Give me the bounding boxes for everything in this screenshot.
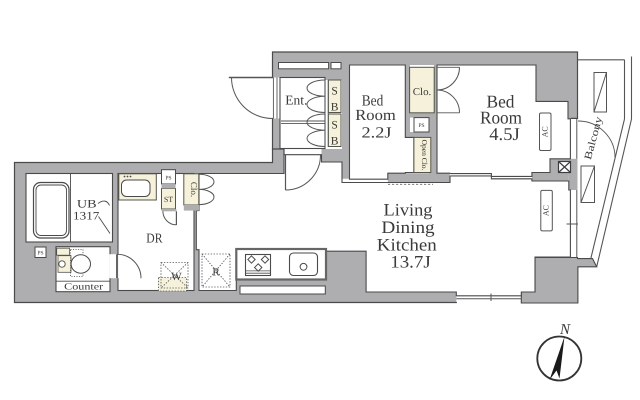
svg-text:13.7J: 13.7J <box>390 251 431 271</box>
svg-text:S: S <box>331 86 337 98</box>
svg-text:AC: AC <box>542 205 551 216</box>
svg-text:R: R <box>212 267 220 279</box>
svg-text:Clo.: Clo. <box>189 182 199 197</box>
svg-text:4.5J: 4.5J <box>489 124 520 144</box>
svg-text:Clo.: Clo. <box>413 87 432 98</box>
svg-text:PS: PS <box>418 123 424 129</box>
svg-text:2.2J: 2.2J <box>362 124 392 141</box>
svg-text:DR: DR <box>146 231 162 246</box>
svg-text:Room: Room <box>355 107 396 124</box>
svg-text:Open Clo.: Open Clo. <box>420 140 429 171</box>
svg-text:B: B <box>331 102 339 114</box>
svg-text:PS: PS <box>165 176 171 182</box>
svg-text:B: B <box>331 136 339 148</box>
svg-text:Counter: Counter <box>64 283 104 293</box>
svg-text:AC: AC <box>541 126 550 137</box>
svg-text:N: N <box>559 322 571 338</box>
svg-text:1317: 1317 <box>73 210 100 222</box>
svg-text:S: S <box>331 120 337 132</box>
svg-text:UB: UB <box>77 199 97 211</box>
svg-text:PS: PS <box>37 251 43 257</box>
svg-text:ST: ST <box>164 195 173 204</box>
svg-text:Ent.: Ent. <box>285 93 307 108</box>
svg-text:W: W <box>171 271 182 283</box>
